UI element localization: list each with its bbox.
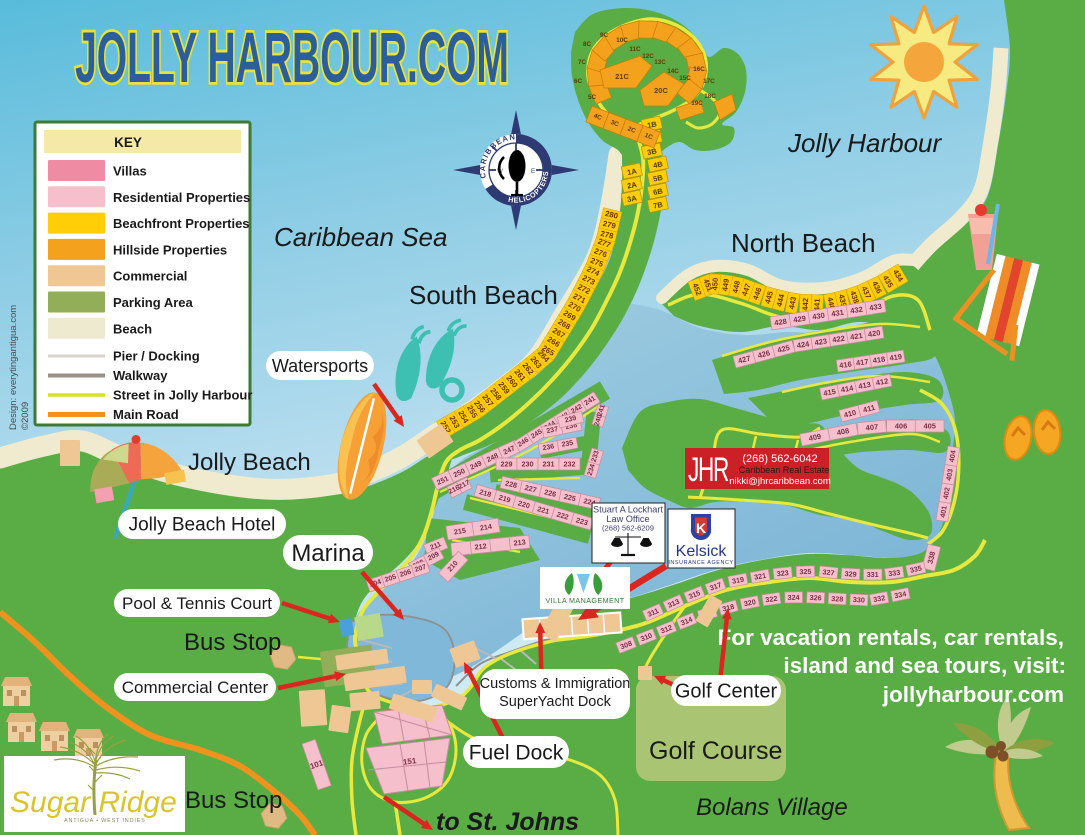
svg-text:Jolly Beach: Jolly Beach (188, 449, 311, 476)
svg-text:21C: 21C (615, 72, 629, 81)
svg-text:14C: 14C (667, 68, 679, 75)
svg-text:South Beach: South Beach (409, 280, 558, 310)
svg-text:JHR: JHR (688, 451, 728, 489)
svg-text:(268) 562-6209: (268) 562-6209 (602, 524, 654, 533)
svg-text:324: 324 (788, 593, 800, 602)
svg-text:For vacation rentals, car rent: For vacation rentals, car rentals, (718, 625, 1064, 650)
svg-text:Fuel Dock: Fuel Dock (469, 741, 564, 764)
svg-text:11C: 11C (629, 46, 641, 53)
svg-text:8C: 8C (583, 41, 592, 48)
svg-text:418: 418 (872, 354, 886, 365)
svg-text:406: 406 (895, 422, 908, 431)
svg-text:jollyharbour.com: jollyharbour.com (882, 682, 1064, 707)
svg-text:325: 325 (799, 567, 811, 576)
svg-text:326: 326 (809, 593, 821, 603)
svg-text:329: 329 (844, 569, 856, 579)
svg-text:Marina: Marina (291, 540, 365, 567)
svg-text:Walkway: Walkway (113, 368, 168, 383)
svg-text:Jolly Beach Hotel: Jolly Beach Hotel (129, 515, 276, 536)
svg-text:KEY: KEY (114, 135, 142, 150)
svg-text:16C: 16C (693, 66, 705, 73)
svg-text:JOLLY HARBOUR.COM: JOLLY HARBOUR.COM (75, 19, 509, 98)
svg-text:215: 215 (453, 526, 466, 537)
svg-text:Street in Jolly Harbour: Street in Jolly Harbour (113, 388, 252, 403)
svg-text:430: 430 (812, 311, 826, 322)
svg-text:9C: 9C (600, 32, 609, 39)
svg-text:17C: 17C (703, 78, 715, 85)
svg-text:402: 402 (941, 487, 952, 500)
svg-text:E: E (531, 169, 535, 175)
svg-text:5C: 5C (588, 94, 597, 101)
svg-text:231: 231 (543, 460, 555, 469)
svg-text:Beach: Beach (113, 321, 152, 336)
svg-text:151: 151 (402, 756, 417, 767)
svg-text:6C: 6C (574, 78, 583, 85)
svg-text:Pier / Docking: Pier / Docking (113, 349, 200, 364)
svg-text:450: 450 (710, 278, 720, 291)
svg-text:Parking Area: Parking Area (113, 295, 193, 310)
svg-text:214: 214 (479, 522, 492, 533)
svg-text:432: 432 (850, 305, 864, 316)
svg-text:Golf Course: Golf Course (649, 737, 782, 765)
svg-text:Residential Properties: Residential Properties (113, 190, 250, 205)
svg-text:416: 416 (839, 359, 853, 370)
svg-text:212: 212 (474, 541, 487, 551)
svg-text:VILLA MANAGEMENT: VILLA MANAGEMENT (545, 596, 624, 605)
svg-text:333: 333 (888, 568, 901, 579)
svg-text:429: 429 (793, 314, 807, 325)
svg-text:421: 421 (850, 331, 864, 342)
svg-text:331: 331 (867, 570, 879, 579)
svg-text:SuperYacht Dock: SuperYacht Dock (499, 694, 612, 710)
svg-text:Bus Stop: Bus Stop (184, 629, 281, 656)
svg-text:330: 330 (853, 595, 865, 605)
svg-text:Jolly Harbour: Jolly Harbour (787, 128, 943, 158)
svg-text:327: 327 (822, 567, 835, 577)
svg-text:19C: 19C (691, 100, 703, 107)
svg-text:island and sea tours, visit:: island and sea tours, visit: (783, 653, 1066, 678)
svg-text:20C: 20C (654, 86, 668, 95)
svg-text:©2009: ©2009 (20, 402, 31, 430)
svg-text:323: 323 (776, 568, 789, 578)
svg-text:229: 229 (501, 460, 513, 469)
svg-text:10C: 10C (616, 37, 628, 44)
svg-text:Kelsick: Kelsick (676, 543, 728, 560)
svg-text:Commercial Center: Commercial Center (122, 678, 269, 697)
svg-text:Pool & Tennis Court: Pool & Tennis Court (122, 594, 272, 613)
svg-text:K: K (696, 520, 706, 536)
svg-text:7C: 7C (578, 59, 587, 66)
svg-text:449: 449 (720, 278, 731, 292)
svg-text:417: 417 (855, 357, 869, 368)
svg-text:328: 328 (831, 594, 843, 604)
svg-text:Bus Stop: Bus Stop (185, 787, 282, 814)
svg-text:322: 322 (765, 594, 778, 605)
svg-text:419: 419 (889, 352, 903, 363)
svg-text:13C: 13C (654, 59, 666, 66)
svg-text:nikki@jhrcaribbean.com: nikki@jhrcaribbean.com (729, 476, 831, 487)
svg-text:401: 401 (938, 505, 949, 518)
svg-text:404: 404 (947, 450, 958, 463)
svg-text:407: 407 (865, 422, 878, 432)
svg-text:15C: 15C (679, 75, 691, 82)
svg-text:405: 405 (923, 422, 936, 431)
svg-text:232: 232 (564, 460, 576, 469)
svg-text:Stuart A Lockhart: Stuart A Lockhart (593, 505, 663, 515)
svg-text:Design: everytingantigua.com: Design: everytingantigua.com (8, 305, 19, 430)
svg-text:213: 213 (513, 537, 526, 547)
svg-text:Bolans Village: Bolans Village (696, 794, 848, 821)
svg-text:Beachfront Properties: Beachfront Properties (113, 216, 250, 231)
svg-text:ANTIGUA • WEST INDIES: ANTIGUA • WEST INDIES (64, 818, 146, 824)
svg-text:230: 230 (522, 460, 534, 469)
svg-text:Villas: Villas (113, 164, 147, 179)
svg-text:Hillside Properties: Hillside Properties (113, 242, 227, 257)
svg-text:Watersports: Watersports (272, 356, 368, 376)
svg-text:Golf Center: Golf Center (675, 681, 778, 703)
svg-text:Main Road: Main Road (113, 407, 179, 422)
svg-text:Law Office: Law Office (606, 514, 649, 524)
svg-text:North Beach: North Beach (731, 228, 876, 258)
svg-text:Caribbean Real Estate: Caribbean Real Estate (739, 465, 830, 475)
svg-text:431: 431 (831, 308, 845, 319)
svg-text:to St. Johns: to St. Johns (436, 808, 579, 835)
svg-text:442: 442 (801, 298, 810, 311)
svg-text:422: 422 (832, 334, 846, 345)
svg-text:428: 428 (774, 317, 788, 328)
svg-text:423: 423 (814, 336, 828, 347)
svg-text:Commercial: Commercial (113, 269, 187, 284)
svg-text:(268) 562-6042: (268) 562-6042 (742, 453, 817, 465)
svg-text:INSURANCE AGENCY: INSURANCE AGENCY (668, 560, 733, 566)
svg-text:433: 433 (869, 302, 883, 313)
svg-text:18C: 18C (704, 93, 716, 100)
svg-text:403: 403 (944, 468, 955, 481)
svg-text:Caribbean Sea: Caribbean Sea (274, 222, 447, 252)
svg-text:Sugar Ridge: Sugar Ridge (10, 786, 177, 819)
svg-text:Customs & Immigration: Customs & Immigration (480, 676, 631, 692)
